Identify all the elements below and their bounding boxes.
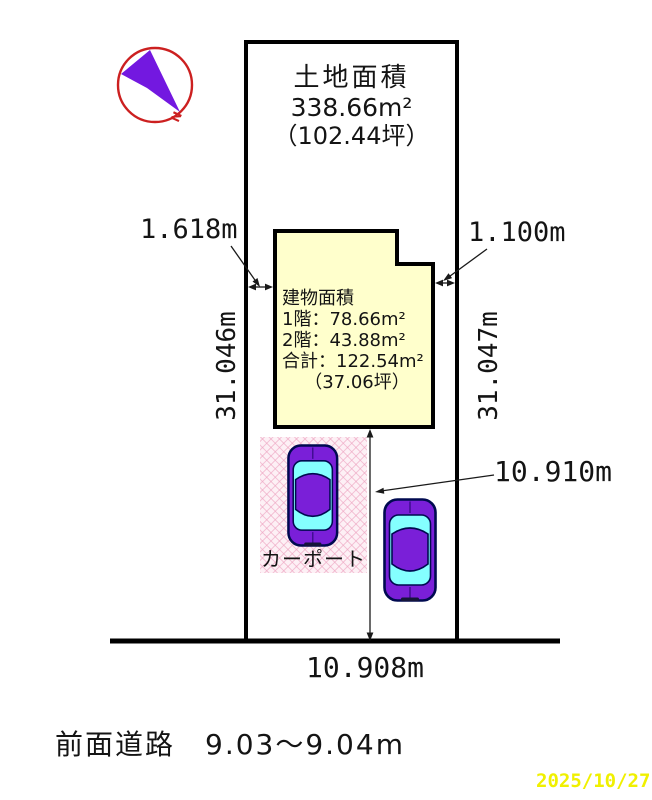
land-area-tsubo: （102.44坪） xyxy=(246,122,457,151)
leader-yard-depth-head xyxy=(375,488,384,494)
land-area-title: 土地面積 xyxy=(246,64,457,93)
compass-icon: N xyxy=(118,48,192,124)
land-area-block: 土地面積 338.66m² （102.44坪） xyxy=(246,64,457,151)
land-area-m2: 338.66m² xyxy=(246,93,457,122)
building-area-block: 建物面積 1階：78.66m² 2階：43.88m² 合計：122.54m² （… xyxy=(282,288,432,393)
dim-gap-right: 1.100m xyxy=(468,217,566,248)
dim-depth-left: 31.046m xyxy=(212,311,242,421)
front-road-label: 前面道路 9.03～9.04m xyxy=(55,723,405,763)
building-area-tsubo: （37.06坪） xyxy=(282,372,432,393)
building-area-floor1: 1階：78.66m² xyxy=(282,309,432,330)
dim-yard-depth: 10.910m xyxy=(494,455,612,488)
car-on-driveway xyxy=(385,500,436,602)
dim-frontage: 10.908m xyxy=(306,651,424,684)
date-label: 2025/10/27 xyxy=(536,770,650,792)
building-area-title: 建物面積 xyxy=(282,288,432,309)
arrow-yard-depth-head-top xyxy=(367,429,374,438)
dim-gap-left: 1.618m xyxy=(140,214,238,245)
arrow-gap-right-head2 xyxy=(447,280,455,287)
arrow-gap-left-head2 xyxy=(265,284,273,291)
plot-diagram: N xyxy=(0,0,652,800)
building-area-floor2: 2階：43.88m² xyxy=(282,330,432,351)
carport-label: カーポート xyxy=(260,543,367,572)
leader-yard-depth xyxy=(381,475,494,491)
building-area-total: 合計：122.54m² xyxy=(282,351,432,372)
car-in-carport xyxy=(288,445,337,546)
arrow-gap-right-head1 xyxy=(435,280,443,287)
arrow-gap-left-head1 xyxy=(248,284,256,291)
leader-gap-right xyxy=(446,249,487,279)
dim-depth-right: 31.047m xyxy=(474,311,504,421)
